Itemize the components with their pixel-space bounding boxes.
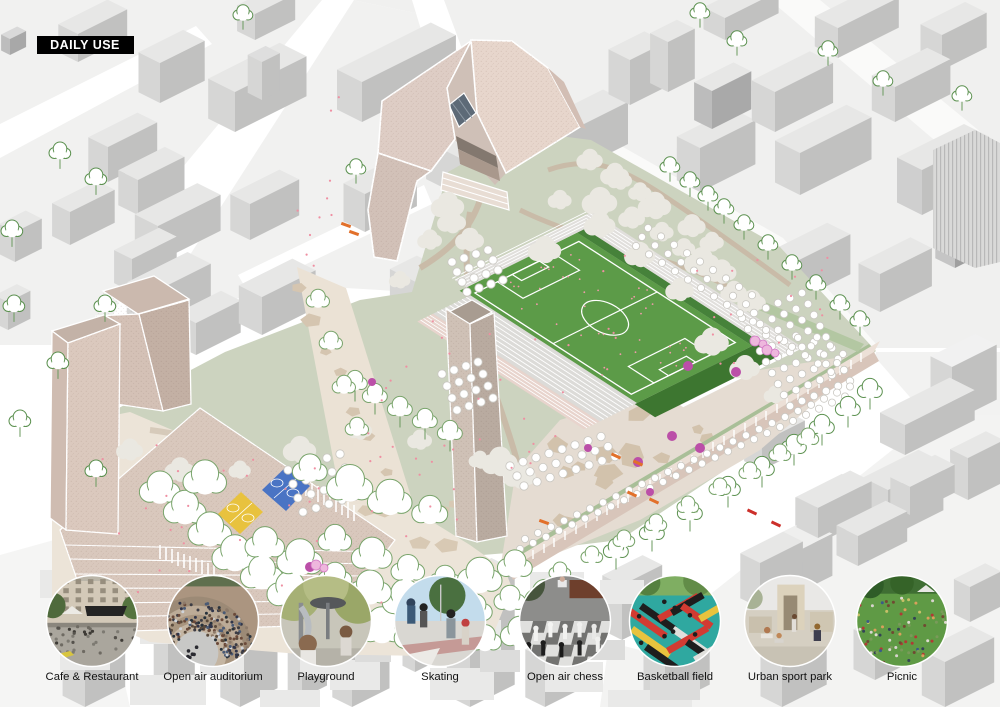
svg-text:Basketball field: Basketball field: [637, 671, 713, 683]
svg-text:Urban sport park: Urban sport park: [748, 671, 832, 683]
svg-text:Skating: Skating: [421, 671, 459, 683]
svg-text:Picnic: Picnic: [887, 671, 917, 683]
svg-text:Playground: Playground: [297, 671, 354, 683]
svg-text:DAILY USE: DAILY USE: [50, 38, 120, 52]
svg-text:Open air chess: Open air chess: [527, 671, 603, 683]
svg-text:Cafe & Restaurant: Cafe & Restaurant: [46, 671, 140, 683]
svg-text:Open air auditorium: Open air auditorium: [163, 671, 262, 683]
